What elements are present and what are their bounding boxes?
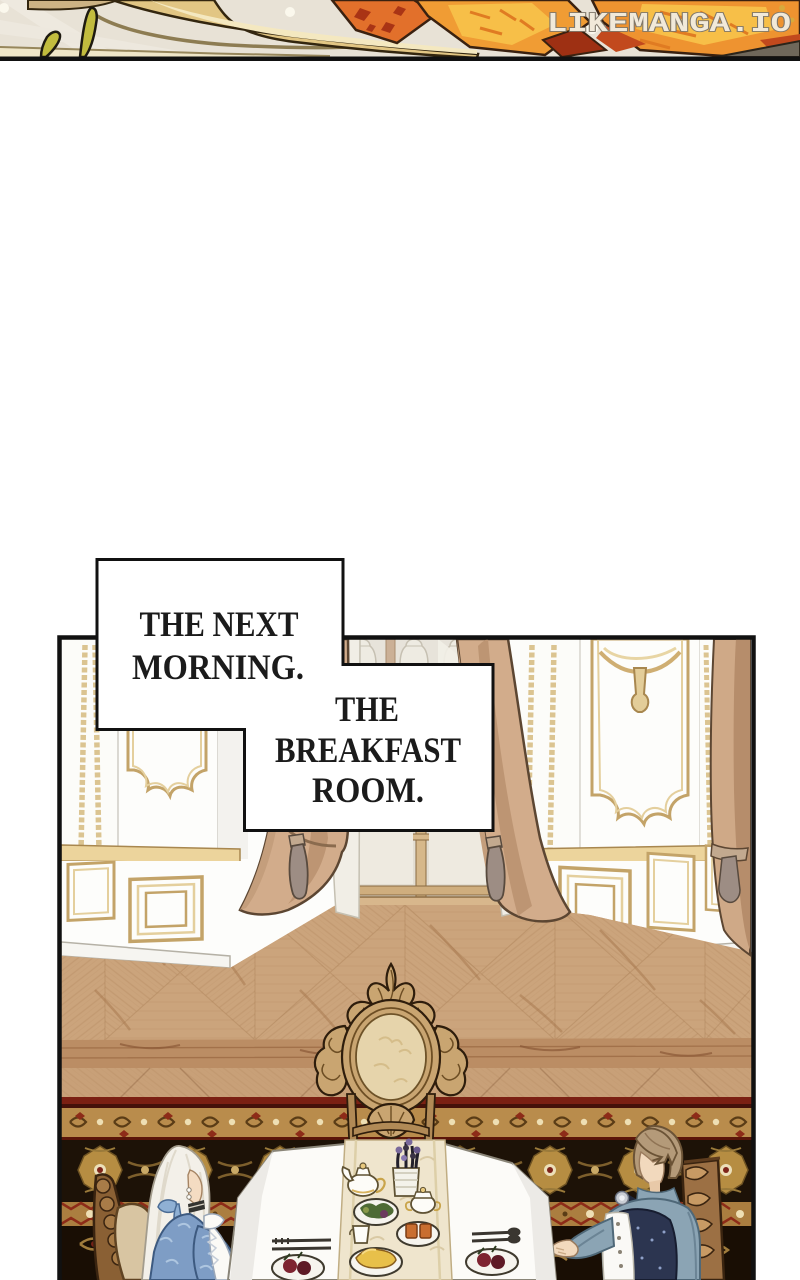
svg-text:THE: THE <box>335 689 399 729</box>
svg-text:THE NEXT: THE NEXT <box>140 604 299 644</box>
svg-text:MORNING.: MORNING. <box>132 647 304 687</box>
svg-text:BREAKFAST: BREAKFAST <box>275 730 461 770</box>
svg-text:LIKEMANGA.IO: LIKEMANGA.IO <box>547 10 791 40</box>
svg-text:ROOM.: ROOM. <box>312 770 424 810</box>
